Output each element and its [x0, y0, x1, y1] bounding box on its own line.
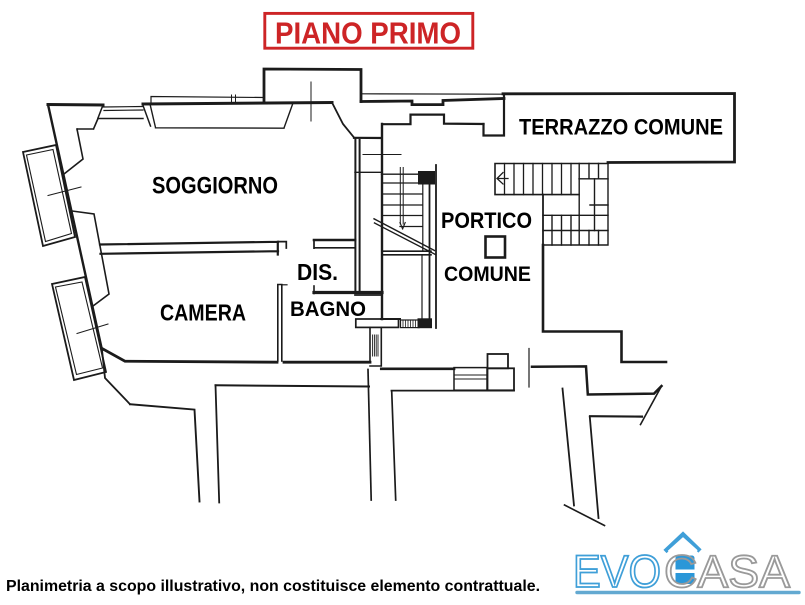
svg-text:TERRAZZO COMUNE: TERRAZZO COMUNE — [519, 115, 723, 140]
svg-text:COMUNE: COMUNE — [444, 263, 531, 286]
svg-text:Planimetria a scopo illustrati: Planimetria a scopo illustrativo, non co… — [6, 578, 540, 595]
svg-text:PORTICO: PORTICO — [441, 208, 532, 233]
svg-text:SOGGIORNO: SOGGIORNO — [152, 173, 278, 200]
svg-text:PIANO PRIMO: PIANO PRIMO — [275, 16, 461, 51]
svg-text:CASA: CASA — [664, 546, 790, 597]
svg-text:DIS.: DIS. — [297, 259, 338, 285]
svg-text:CAMERA: CAMERA — [160, 300, 246, 326]
svg-text:EVO: EVO — [573, 546, 661, 597]
svg-text:BAGNO: BAGNO — [290, 298, 366, 321]
